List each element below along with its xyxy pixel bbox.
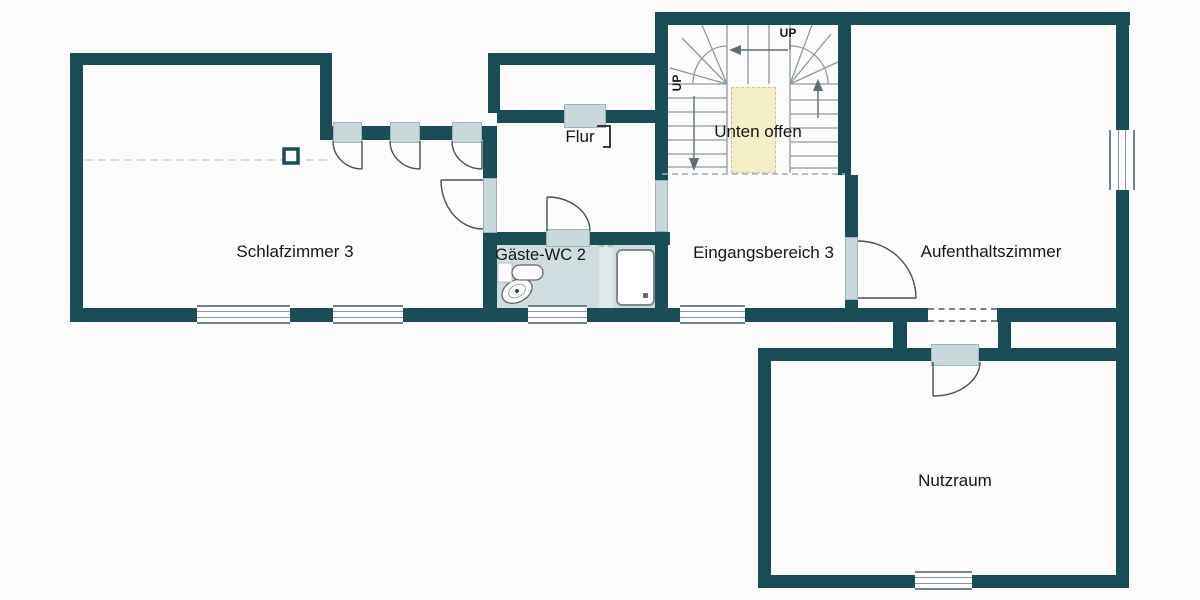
room-label-aufenthaltszimmer: Aufenthaltszimmer [901, 242, 1081, 262]
room-label-schlafzimmer-3: Schlafzimmer 3 [215, 242, 375, 262]
window [1109, 130, 1135, 190]
wall-segment [497, 110, 566, 123]
room-label-gaeste-wc-2: Gäste-WC 2 [478, 246, 603, 265]
wall-segment [488, 53, 662, 65]
window [915, 571, 972, 590]
open-passage [928, 308, 997, 322]
wall-segment [290, 308, 333, 322]
wall-segment [758, 348, 931, 361]
wall-segment [970, 575, 1129, 588]
closet-door-swing [452, 141, 482, 169]
wc-door-panel [546, 229, 590, 247]
wall-segment [420, 126, 452, 140]
wall-segment [483, 232, 546, 245]
closet-door-panel [452, 122, 482, 143]
room-label-eingangsbereich-3: Eingangsbereich 3 [676, 243, 851, 263]
wall-segment [758, 348, 771, 588]
wall-segment [845, 175, 858, 237]
closet-door-swing [333, 141, 362, 169]
wall-segment [655, 232, 668, 322]
wall-segment [838, 25, 851, 175]
bedroom-door-panel [483, 178, 497, 233]
hall-entrance-passage [655, 180, 668, 232]
stair-up-label-left: UP [670, 70, 684, 96]
window [680, 305, 745, 324]
wall-segment [893, 322, 907, 350]
wall-segment [70, 308, 197, 322]
utility-door-panel [931, 344, 979, 366]
closet-door-panel [333, 122, 362, 143]
wall-segment [758, 575, 917, 588]
floor-plan: Schlafzimmer 3 Flur Gäste-WC 2 Eingangsb… [0, 0, 1200, 600]
wall-segment [320, 126, 333, 140]
window [197, 305, 290, 324]
wall-segment [655, 12, 1130, 25]
wall-segment [655, 12, 668, 180]
wall-segment [845, 300, 858, 322]
room-label-flur: Flur [556, 127, 604, 147]
wall-segment [70, 53, 332, 65]
shower-tray [616, 249, 655, 306]
wall-segment [1116, 12, 1129, 588]
wall-segment [362, 126, 390, 140]
window [528, 305, 587, 324]
wall-segment [604, 110, 662, 123]
stair-open-below-label: Unten offen [702, 122, 814, 142]
wall-segment [998, 322, 1011, 350]
wall-segment [70, 53, 83, 322]
wall-segment [403, 308, 528, 322]
wall-segment [488, 53, 500, 113]
closet-door-panel [390, 122, 420, 143]
wall-segment [979, 348, 1116, 361]
bedroom-door-swing [441, 180, 483, 229]
hall-window-panel [564, 104, 606, 128]
stair-up-label-top: UP [775, 26, 801, 40]
wc-door-swing [547, 197, 590, 231]
chimney [284, 149, 298, 163]
wall-segment [483, 126, 497, 178]
wall-segment [745, 308, 928, 322]
window [333, 305, 403, 324]
closet-door-swing [390, 141, 420, 169]
room-label-nutzraum: Nutzraum [905, 471, 1005, 491]
utility-door-swing [933, 362, 980, 396]
wall-segment [997, 308, 1129, 322]
